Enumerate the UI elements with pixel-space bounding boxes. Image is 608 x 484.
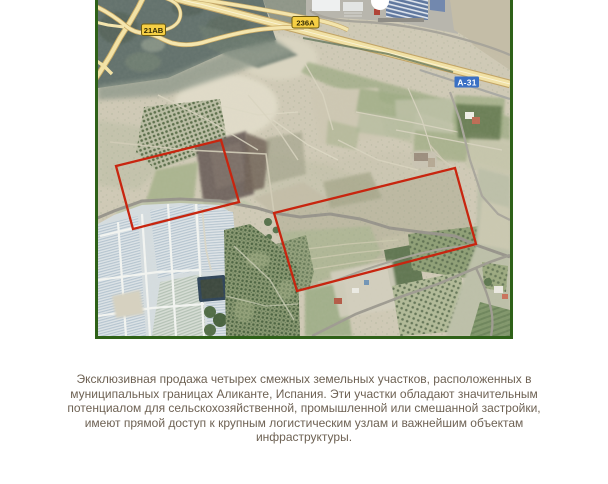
svg-text:A-31: A-31: [457, 78, 476, 88]
svg-text:236A: 236A: [296, 18, 315, 27]
svg-text:21AB: 21AB: [144, 26, 164, 35]
